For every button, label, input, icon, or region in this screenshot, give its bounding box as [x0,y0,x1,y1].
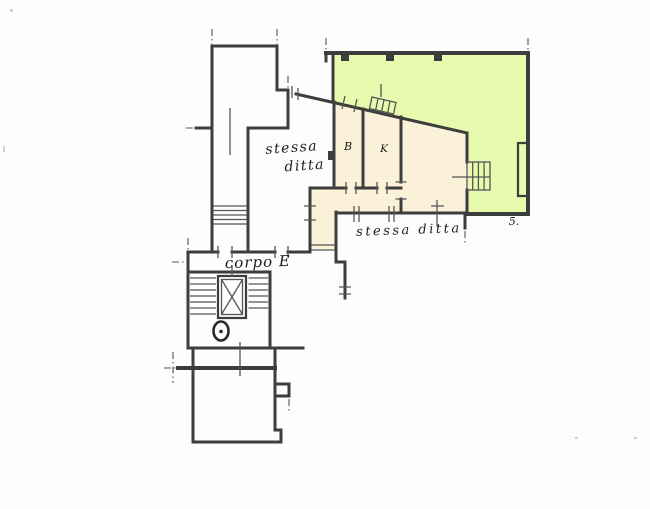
label-corner-mark: 5. [509,215,520,228]
interior-stairs-hatching [213,206,247,224]
floor-plan-page: stessa ditta stessa ditta corpo E B K 5. [0,0,650,509]
label-room-k: K [379,143,389,155]
wall-pilaster [328,151,334,160]
elevator-x-mark [222,280,243,315]
storage-room-walls [193,348,275,368]
terrace-pillar [434,55,442,61]
label-building-wing: corpo E [225,252,292,272]
plan-linework: stessa ditta stessa ditta corpo E B K 5. [164,29,528,442]
scan-speck [575,437,578,439]
terrace-pillar [341,55,349,61]
label-adjacent-unit-lower: stessa ditta [356,221,462,240]
column-oval [214,322,229,341]
upper-room-walls [196,46,288,128]
oval-dot [219,330,223,334]
scan-speck [3,146,5,152]
floor-plan-drawing: stessa ditta stessa ditta corpo E B K 5. [0,0,650,509]
lower-rooms [178,342,289,442]
scan-speck [10,9,13,12]
stair-flight-left [190,278,216,314]
terrace-pillar [386,55,394,61]
label-adjacent-unit-upper-line1: stessa [265,138,319,158]
landing-walls [336,250,345,298]
label-room-b: B [343,140,352,153]
stair-flight-right [249,278,269,308]
lower-room-walls [193,368,289,442]
scan-speck [634,437,637,439]
label-adjacent-unit-upper-line2: ditta [284,157,326,176]
